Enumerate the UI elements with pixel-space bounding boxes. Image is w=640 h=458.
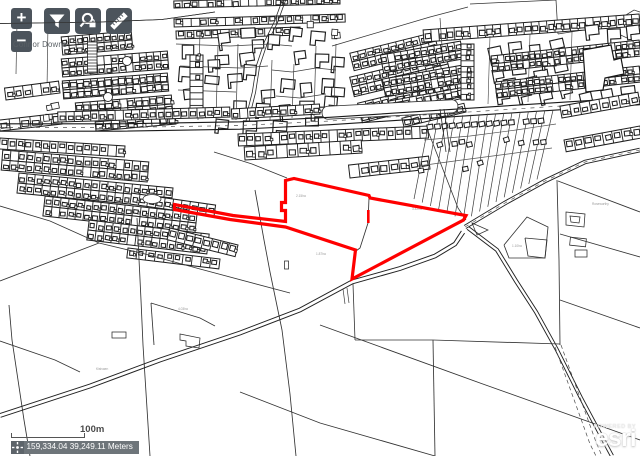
svg-text:1.10ha: 1.10ha <box>512 244 522 248</box>
svg-text:4.03ha: 4.03ha <box>178 307 188 311</box>
svg-text:Kistvaen: Kistvaen <box>96 367 108 371</box>
svg-text:2.15ha: 2.15ha <box>296 194 306 198</box>
svg-text:1.87ha: 1.87ha <box>316 252 326 256</box>
svg-text:Roseworthy: Roseworthy <box>592 202 609 206</box>
